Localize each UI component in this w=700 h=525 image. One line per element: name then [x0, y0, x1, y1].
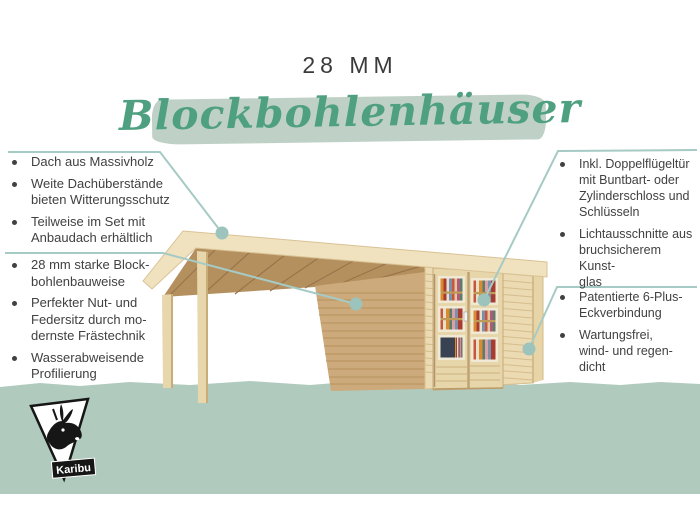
- cabin-side-wall: [315, 272, 425, 391]
- feature-item: 28 mm starke Block- bohlenbauweise: [8, 257, 193, 290]
- feature-item: Weite Dachüberstände bieten Witterungssc…: [8, 176, 193, 209]
- callout-dot-door: [478, 294, 491, 307]
- door-window-panes-right: [471, 278, 498, 362]
- feature-item: Perfekter Nut- und Federsitz durch mo- d…: [8, 295, 193, 345]
- feature-item: Wasserabweisende Profilierung: [8, 350, 193, 383]
- feature-item: Teilweise im Set mit Anbaudach erhältlic…: [8, 214, 193, 247]
- marketing-infographic: Karibu 28 MM Blockbohlenhäuser Dach aus …: [0, 0, 700, 525]
- callout-dot-wall: [350, 298, 363, 311]
- feature-item: Lichtausschnitte aus bruchsicherem Kunst…: [556, 226, 698, 290]
- feature-list-door: Inkl. Doppelflügeltür mit Buntbart- oder…: [556, 156, 698, 296]
- feature-item: Wartungsfrei, wind- und regen- dicht: [556, 327, 698, 375]
- garden-house-illustration: [143, 231, 547, 403]
- product-thickness-title: 28 MM: [0, 52, 700, 79]
- feature-list-corners: Patentierte 6-Plus- Eckverbindung Wartun…: [556, 289, 698, 381]
- feature-list-roof: Dach aus Massivholz Weite Dachüberstände…: [8, 154, 193, 252]
- feature-item: Inkl. Doppelflügeltür mit Buntbart- oder…: [556, 156, 698, 220]
- callout-dot-roof: [216, 227, 229, 240]
- callout-dot-corner: [523, 343, 536, 356]
- feature-item: Dach aus Massivholz: [8, 154, 193, 171]
- door-handle: [464, 312, 468, 321]
- ground-band: [0, 380, 700, 494]
- double-door: [433, 268, 503, 390]
- door-window-panes-left: [438, 276, 465, 360]
- feature-item: Patentierte 6-Plus- Eckverbindung: [556, 289, 698, 321]
- feature-list-walls: 28 mm starke Block- bohlenbauweise Perfe…: [8, 257, 193, 388]
